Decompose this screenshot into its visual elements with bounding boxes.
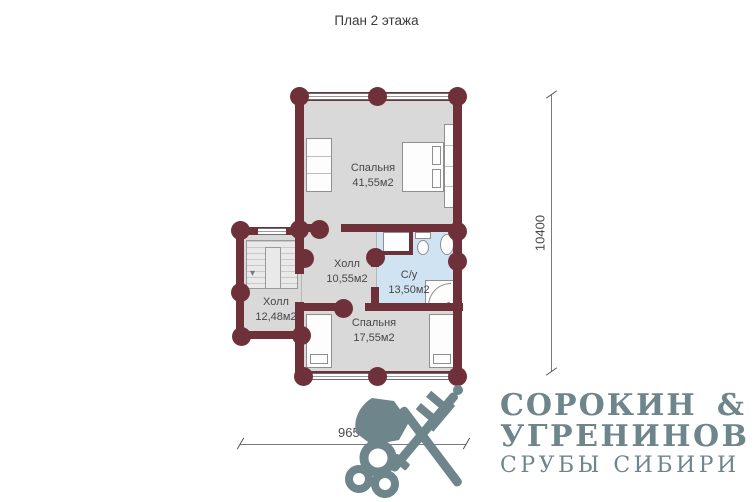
log-end xyxy=(334,299,353,318)
logo-tagline: СРУБЫ СИБИРИ xyxy=(500,453,746,479)
wall-mid-upper-right xyxy=(341,224,463,232)
wall-niche-right xyxy=(409,231,413,255)
wall-left-upper xyxy=(295,92,304,274)
logo-name-part1: СОРОКИН xyxy=(500,391,697,421)
room-name: Холл xyxy=(255,295,296,310)
toilet-tank xyxy=(415,232,431,239)
room-name: Холл xyxy=(326,257,367,272)
window xyxy=(258,228,286,235)
room-name: Спальня xyxy=(352,316,396,331)
window xyxy=(308,93,372,100)
pillow xyxy=(432,169,441,188)
log-end xyxy=(366,248,385,267)
log-end xyxy=(290,87,309,106)
pillow xyxy=(432,146,441,165)
log-end xyxy=(448,252,467,271)
staircase-landing xyxy=(265,247,281,289)
dimension-line-vertical xyxy=(551,95,552,372)
bathroom-niche xyxy=(383,232,410,253)
log-end xyxy=(295,249,314,268)
log-end xyxy=(292,326,311,345)
window xyxy=(386,93,450,100)
room-label-hall-left: Холл 12,48м2 xyxy=(255,295,296,325)
room-label-bedroom-bottom: Спальня 17,55м2 xyxy=(352,316,396,346)
window xyxy=(386,373,450,380)
log-end xyxy=(231,283,250,302)
toilet-bowl xyxy=(417,240,429,255)
log-end xyxy=(232,327,251,346)
room-name: С/у xyxy=(388,268,429,283)
crossed-axe-and-key-icon xyxy=(342,380,482,502)
log-end xyxy=(310,220,329,239)
log-end xyxy=(290,220,309,239)
wall-bath-left-lower xyxy=(371,287,379,311)
log-end xyxy=(448,87,467,106)
room-area: 41,55м2 xyxy=(351,176,395,191)
wall-mid-lower-right xyxy=(365,303,463,311)
logo-name-line1: СОРОКИН & xyxy=(500,391,746,421)
room-name: Спальня xyxy=(351,161,395,176)
logo-text: СОРОКИН & УГРЕНИНОВ СРУБЫ СИБИРИ xyxy=(500,391,746,479)
staircase-direction-arrow: ▾ xyxy=(250,268,255,279)
log-end xyxy=(231,221,250,240)
log-end xyxy=(294,367,313,386)
pillow xyxy=(433,354,451,364)
room-area: 12,48м2 xyxy=(255,310,296,325)
log-end xyxy=(448,222,467,241)
room-area: 17,55м2 xyxy=(352,331,396,346)
room-label-bathroom: С/у 13,50м2 xyxy=(388,268,429,298)
room-area: 10,55м2 xyxy=(326,272,367,287)
room-area: 13,50м2 xyxy=(388,283,429,298)
room-label-hall-middle: Холл 10,55м2 xyxy=(326,257,367,287)
pillow xyxy=(310,354,328,364)
dresser xyxy=(306,138,332,192)
logo-name-line2: УГРЕНИНОВ xyxy=(500,421,746,453)
log-end xyxy=(368,87,387,106)
floor-plan-page: { "title": "План 2 этажа", "plan": { "ro… xyxy=(0,0,753,502)
dimension-value-vertical: 10400 xyxy=(533,215,548,251)
room-label-bedroom-top: Спальня 41,55м2 xyxy=(351,161,395,191)
logo-ampersand: & xyxy=(717,391,746,421)
window xyxy=(308,373,372,380)
